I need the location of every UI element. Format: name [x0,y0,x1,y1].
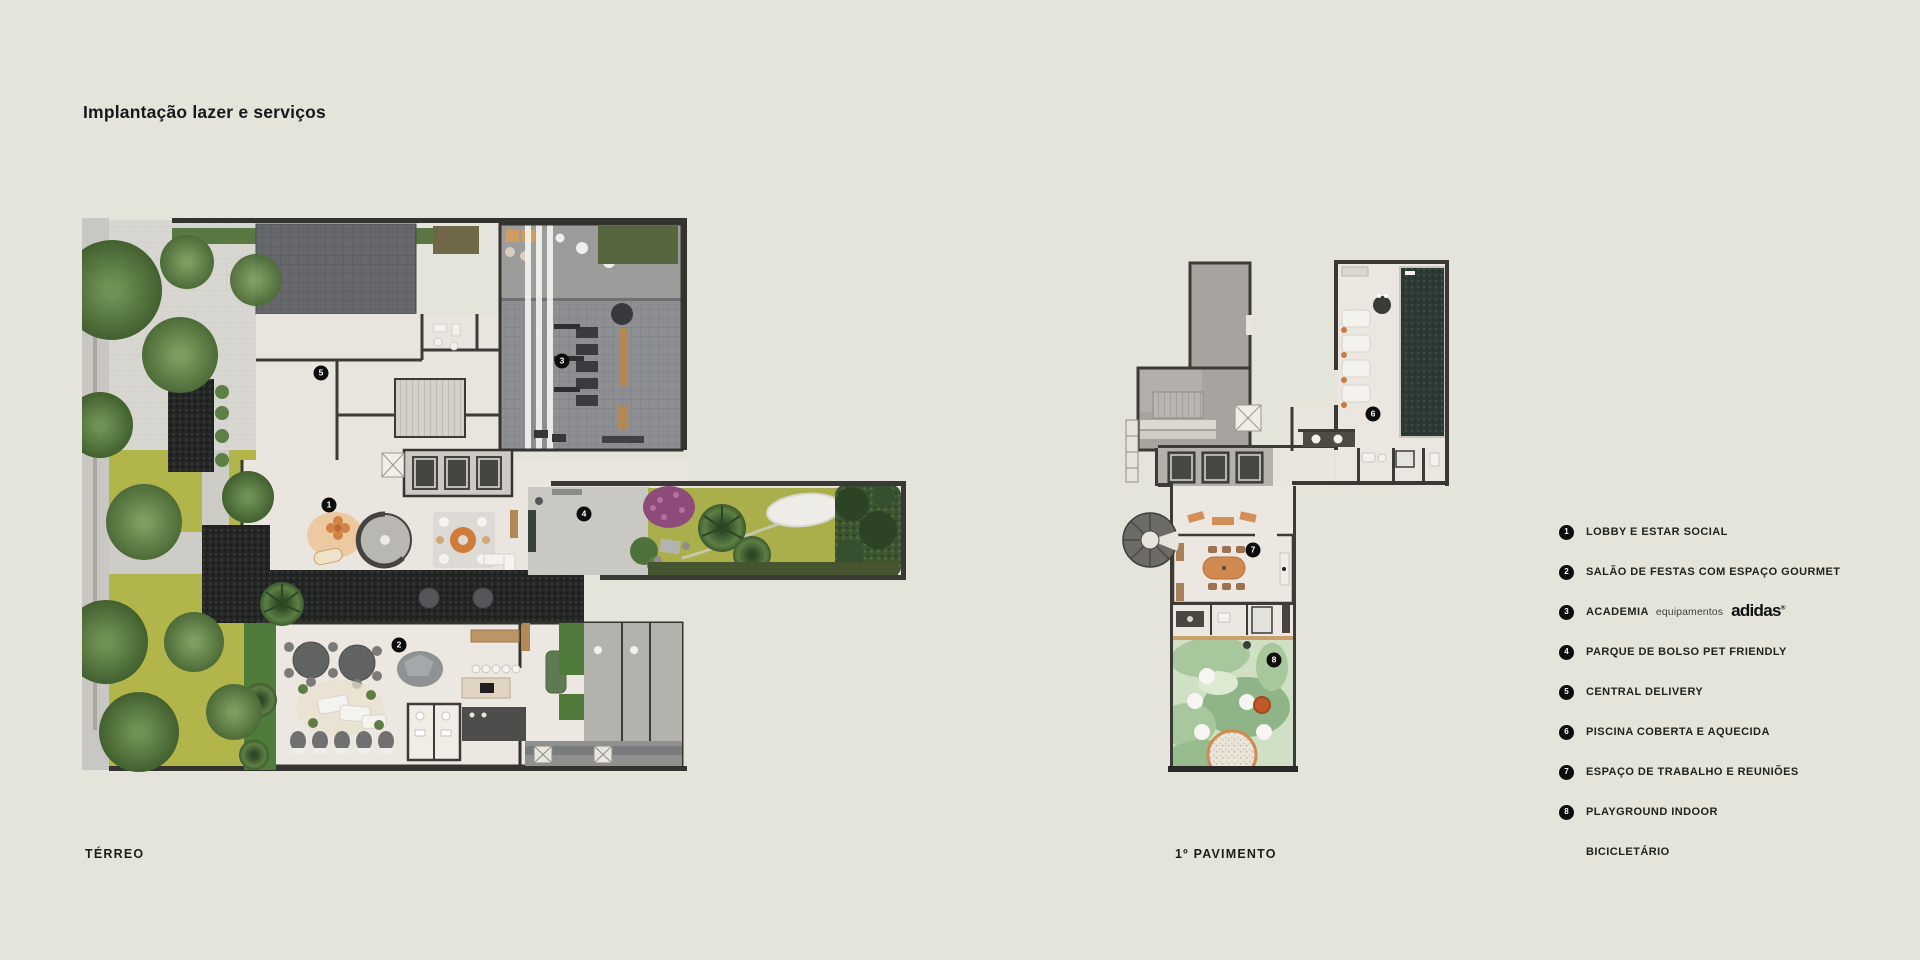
legend-bullet-8: 8 [1559,805,1574,820]
wc-rooms [408,704,460,760]
terreo-caption: TÉRREO [85,847,144,861]
plan-marker-3: 3 [555,354,570,369]
pet-park [528,481,906,580]
legend-bullet-4: 4 [1559,645,1574,660]
stairs [395,379,465,437]
legend-item-label: ACADEMIA [1586,606,1649,618]
legend-bullet-7: 7 [1559,765,1574,780]
service-rooms [584,623,682,741]
adidas-logo: adidas® [1731,601,1785,621]
elevators [1168,452,1263,483]
legend-item-label: BICICLETÁRIO [1586,846,1670,858]
legend-item-label: PARQUE DE BOLSO PET FRIENDLY [1586,646,1787,658]
legend-bullet-6: 6 [1559,725,1574,740]
legend-bullet-1: 1 [1559,525,1574,540]
legend-item-academia: 3 ACADEMIA equipamentos adidas® [1559,592,1840,632]
registered-mark: ® [1781,604,1786,611]
legend-bullet-3: 3 [1559,605,1574,620]
gym-hedge [598,226,678,264]
legend-item-label: ESPAÇO DE TRABALHO E REUNIÕES [1586,766,1799,778]
plan-marker-7: 7 [1246,543,1261,558]
legend-item-salao: 2 SALÃO DE FESTAS COM ESPAÇO GOURMET [1559,552,1840,592]
legend-item-sublabel: equipamentos [1656,606,1723,618]
legend-item-label: LOBBY E ESTAR SOCIAL [1586,526,1728,538]
legend-item-label: PLAYGROUND INDOOR [1586,806,1718,818]
adidas-stripe [547,224,553,450]
plan-marker-2: 2 [392,638,407,653]
work-and-play-wing [1160,486,1298,775]
adidas-stripe [536,224,542,450]
legend: 1 LOBBY E ESTAR SOCIAL 2 SALÃO DE FESTAS… [1559,512,1840,872]
plan-marker-8: 8 [1267,653,1282,668]
legend-item-trabalho: 7 ESPAÇO DE TRABALHO E REUNIÕES [1559,752,1840,792]
gym-area [500,224,682,450]
pavimento-floorplan-image [1110,255,1455,775]
kitchen-counter [462,707,526,741]
legend-item-playground: 8 PLAYGROUND INDOOR [1559,792,1840,832]
legend-item-label: CENTRAL DELIVERY [1586,686,1703,698]
legend-item-label: PISCINA COBERTA E AQUECIDA [1586,726,1770,738]
legend-bullet-2: 2 [1559,565,1574,580]
plan-marker-4: 4 [577,507,592,522]
pool-water [1400,267,1445,437]
plan-marker-1: 1 [322,498,337,513]
legend-item-parque: 4 PARQUE DE BOLSO PET FRIENDLY [1559,632,1840,672]
party-room [258,623,682,766]
legend-item-delivery: 5 CENTRAL DELIVERY [1559,672,1840,712]
adidas-stripe [525,224,531,450]
page: Implantação lazer e serviços [0,0,1920,960]
roof-block [256,224,416,314]
plan-marker-6: 6 [1366,407,1381,422]
plan-marker-5: 5 [314,366,329,381]
page-title: Implantação lazer e serviços [83,102,326,123]
legend-item-bicicletario: BICICLETÁRIO [1559,832,1840,872]
terreo-building [168,218,906,770]
terreo-floorplan-image [82,210,912,775]
legend-bullet-5: 5 [1559,685,1574,700]
legend-item-piscina: 6 PISCINA COBERTA E AQUECIDA [1559,712,1840,752]
legend-item-label: SALÃO DE FESTAS COM ESPAÇO GOURMET [1586,566,1840,578]
legend-item-lobby: 1 LOBBY E ESTAR SOCIAL [1559,512,1840,552]
pavimento-caption: 1º PAVIMENTO [1175,847,1277,861]
